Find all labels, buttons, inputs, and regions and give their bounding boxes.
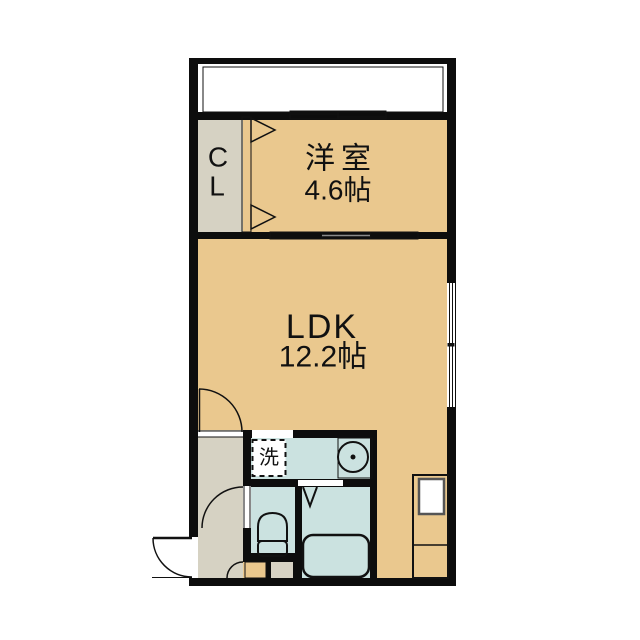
- toilet-doorway: [243, 486, 251, 528]
- closet-label-line2: L: [209, 171, 225, 202]
- entrance-doorway-gap: [189, 537, 198, 578]
- ldk-area: 12.2帖: [279, 341, 367, 374]
- entrance-door-icon: [152, 538, 192, 578]
- wall-above-genkan: [243, 553, 302, 562]
- western-room-area: 4.6帖: [305, 175, 372, 206]
- kitchen-sink-icon: [419, 479, 444, 514]
- wall-top: [189, 58, 456, 64]
- washing-machine-label: 洗: [259, 446, 279, 469]
- wall-bottom: [189, 578, 456, 586]
- bathroom-opening: [298, 480, 343, 486]
- floorplan-canvas: C L 洋室 4.6帖 LDK 12.2帖 洗: [0, 0, 640, 640]
- western-room-label: 洋室: [305, 143, 377, 176]
- bathroom-floor: [302, 479, 377, 578]
- entrance-door-arc: [153, 538, 192, 577]
- ldk-window-icon: [447, 283, 455, 407]
- wall-left: [189, 58, 198, 537]
- hallway-opening-gap: [198, 431, 243, 438]
- wall-genkan-sep: [266, 562, 271, 578]
- entrance-hall-floor: [198, 430, 243, 578]
- ldk-window-divider: [448, 343, 455, 347]
- closet-label-line1: C: [208, 142, 228, 173]
- hallway-opening: [198, 431, 243, 438]
- toilet-room-floor: [243, 487, 302, 560]
- balcony-railing: [203, 67, 443, 112]
- floorplan-drawing: C L 洋室 4.6帖 LDK 12.2帖 洗: [0, 0, 640, 640]
- wall-genkan-right: [293, 562, 302, 578]
- genkan-floor: [271, 560, 293, 578]
- washroom-opening: [252, 430, 293, 438]
- wall-washblock-ldk: [370, 430, 377, 578]
- sink-drain-dot: [351, 455, 356, 460]
